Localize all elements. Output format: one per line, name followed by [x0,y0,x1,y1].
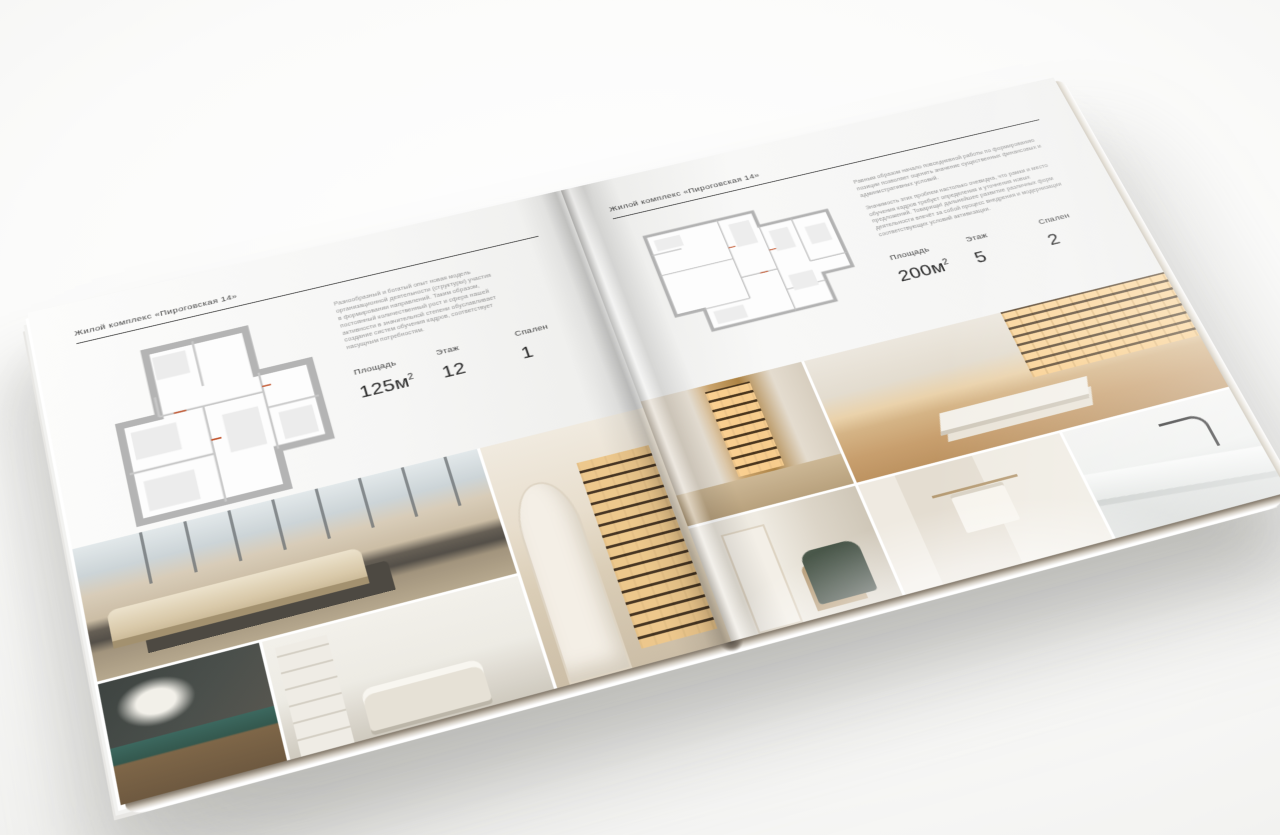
stat-floor-value: 12 [440,352,498,383]
stat-area: Площадь 125м2 [353,356,418,403]
stat-floor: Этаж 5 [964,225,1028,267]
stat-area-value: 200м2 [895,257,954,286]
brochure-spread: Жилой комплекс «Пироговская 14» [27,77,1280,805]
stat-bedrooms-value: 1 [519,333,577,363]
stat-bedrooms: Спален 1 [514,318,577,363]
stat-area-number: 200м [895,258,948,285]
stat-area-value: 125м2 [357,371,417,403]
stat-bedrooms-value: 2 [1044,221,1100,249]
stat-bedrooms: Спален 2 [1037,208,1101,250]
stat-area: Площадь 200м2 [888,243,954,286]
stat-floor-value: 5 [971,239,1028,267]
stat-floor: Этаж 12 [435,337,498,383]
stat-area-sup: 2 [407,373,415,383]
mockup-scene: Жилой комплекс «Пироговская 14» [0,0,1280,835]
stat-area-number: 125м [357,372,412,402]
